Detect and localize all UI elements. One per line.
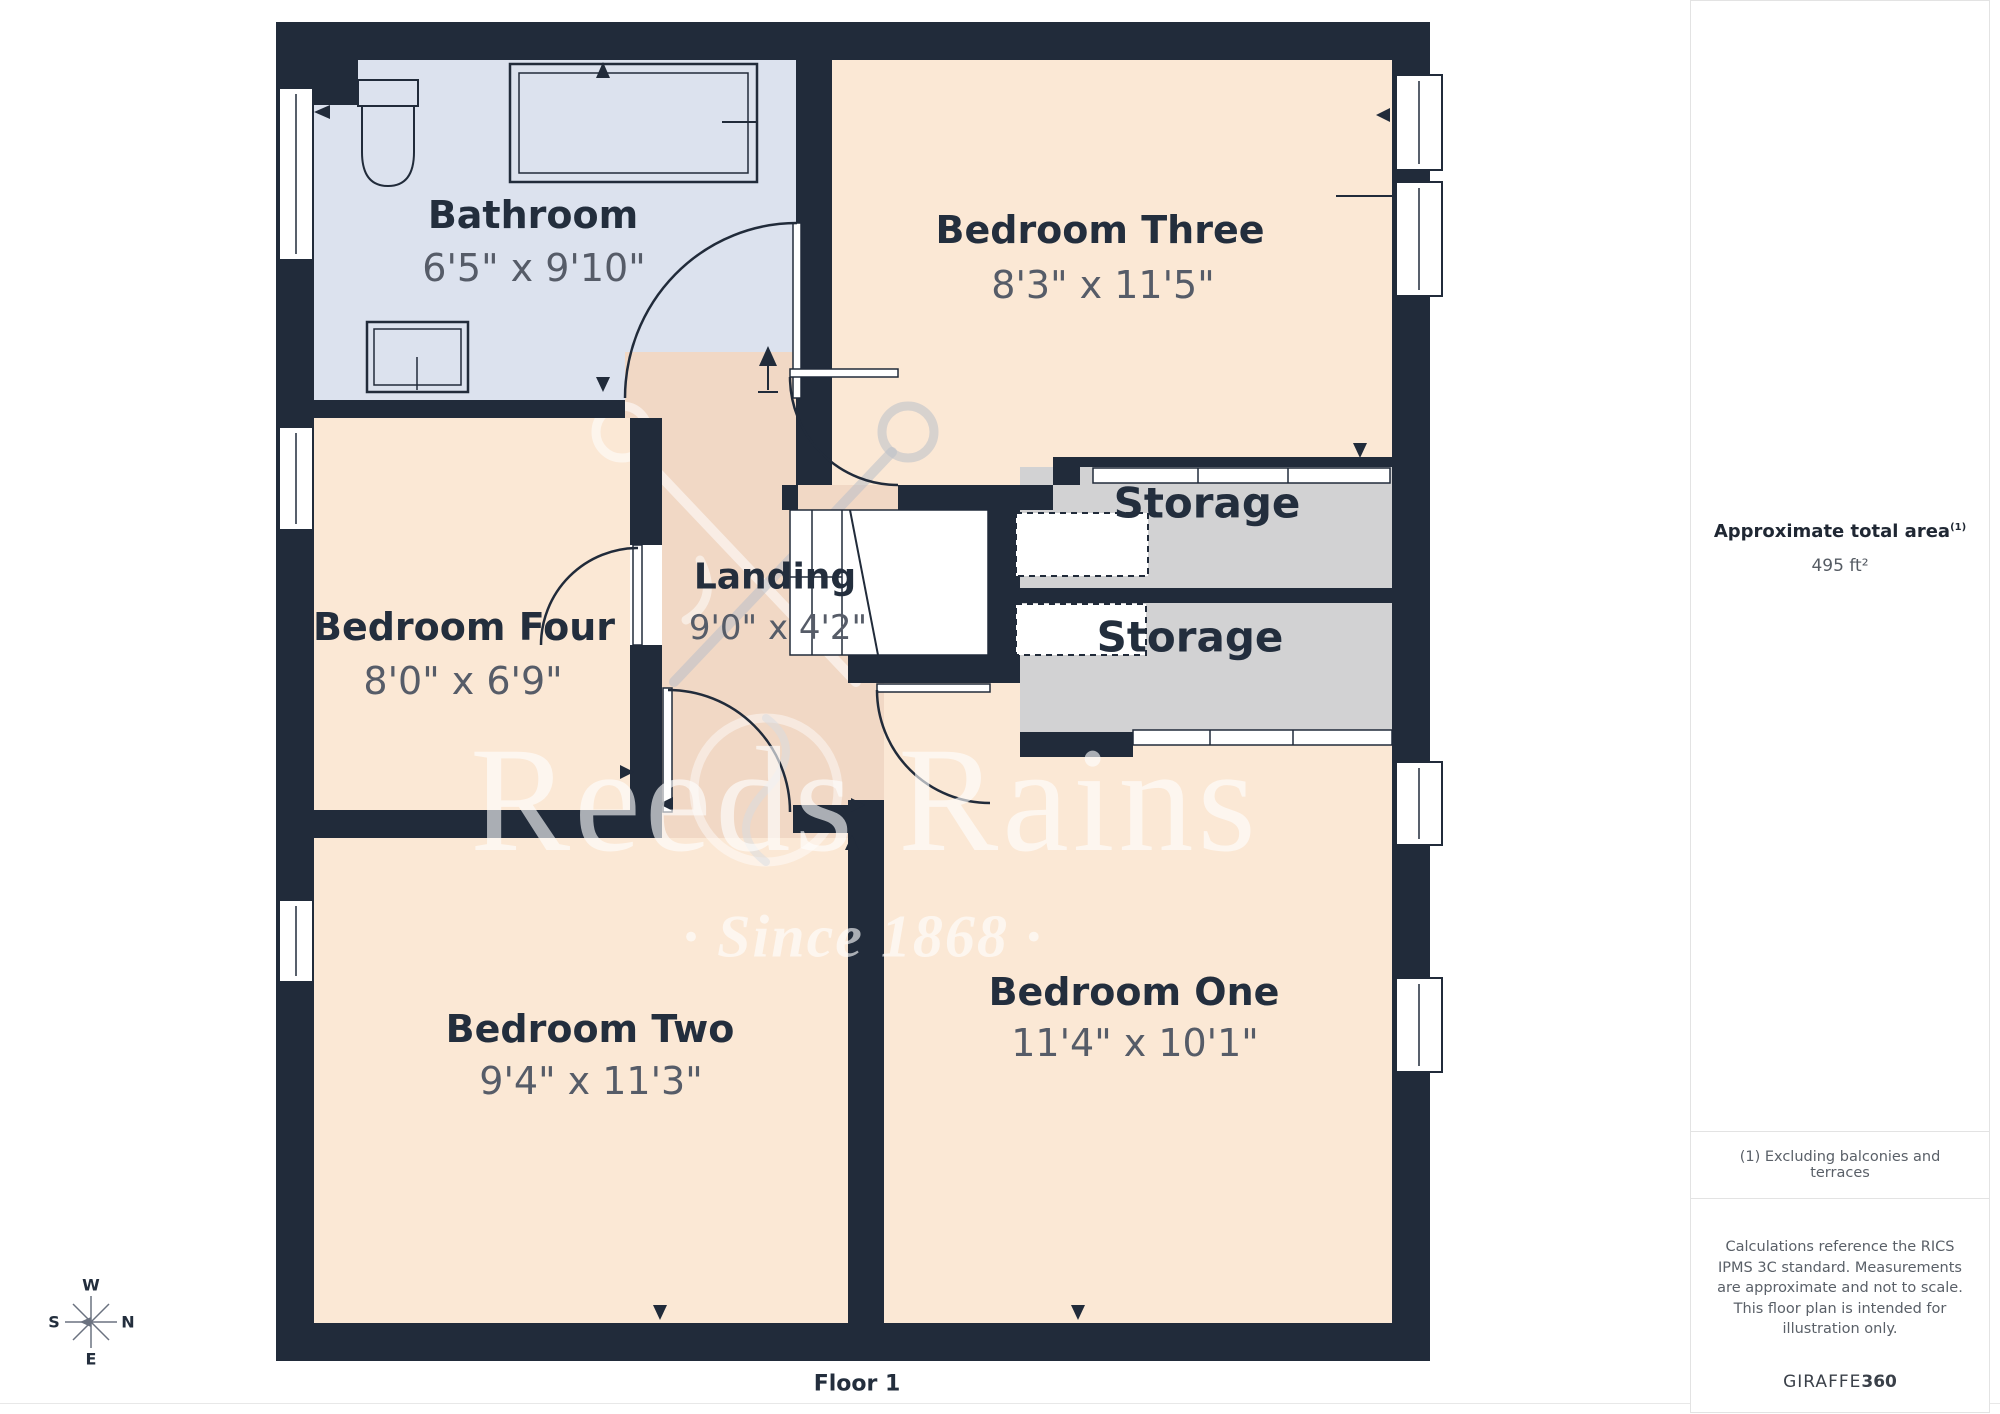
compass-south: S xyxy=(48,1313,60,1332)
watermark-tagline: · Since 1868 · xyxy=(683,903,1043,972)
giraffe360-logo: GIRAFFE360 xyxy=(1691,1372,1989,1392)
compass-north: N xyxy=(121,1313,134,1332)
watermark-brand: Reeds Rains xyxy=(470,714,1260,886)
storage-two-label: Storage xyxy=(1097,613,1284,662)
compass-east: E xyxy=(86,1350,97,1369)
info-sidebar: Approximate total area(1) 495 ft² (1) Ex… xyxy=(1690,0,1990,1413)
footnote-box: (1) Excluding balconies and terraces xyxy=(1691,1131,1989,1199)
bedroom-three-label: Bedroom Three xyxy=(936,208,1265,252)
bedroom-one-dims: 11'4" x 10'1" xyxy=(1011,1021,1259,1065)
bedroom-three-floor xyxy=(832,60,1392,457)
window xyxy=(1396,762,1442,845)
window xyxy=(1396,978,1442,1072)
compass-west: W xyxy=(82,1276,100,1295)
total-area-title-text: Approximate total area xyxy=(1714,521,1950,542)
window xyxy=(1396,182,1442,296)
window xyxy=(1396,75,1442,170)
bedroom-two-dims: 9'4" x 11'3" xyxy=(479,1059,702,1103)
disclaimer-box: Calculations reference the RICS IPMS 3C … xyxy=(1691,1199,1989,1392)
bathroom-dims: 6'5" x 9'10" xyxy=(422,246,645,290)
window xyxy=(279,427,313,530)
landing-label: Landing xyxy=(694,557,856,598)
bedroom-two-label: Bedroom Two xyxy=(446,1007,735,1051)
bedroom-four-label: Bedroom Four xyxy=(313,605,615,649)
total-area-footnote-marker: (1) xyxy=(1950,522,1966,533)
bathroom-label: Bathroom xyxy=(428,193,638,237)
giraffe360-logo-regular: GIRAFFE xyxy=(1783,1372,1861,1392)
outer-wall-top xyxy=(276,22,1430,60)
bedroom-four-dims: 8'0" x 6'9" xyxy=(363,659,562,703)
giraffe360-logo-bold: 360 xyxy=(1861,1372,1897,1392)
bedroom-one-label: Bedroom One xyxy=(989,970,1280,1014)
outer-wall-bottom xyxy=(276,1323,1430,1361)
total-area-block: Approximate total area(1) 495 ft² xyxy=(1691,521,1989,576)
landing-dims: 9'0" x 4'2" xyxy=(689,608,867,648)
window xyxy=(279,88,313,260)
compass-icon xyxy=(65,1296,117,1348)
footnote-text: (1) Excluding balconies and terraces xyxy=(1691,1149,1989,1181)
storage-one-label: Storage xyxy=(1114,479,1301,528)
bedroom-three-dims: 8'3" x 11'5" xyxy=(991,263,1214,307)
floor-label: Floor 1 xyxy=(814,1372,901,1397)
total-area-title: Approximate total area(1) xyxy=(1691,521,1989,542)
window xyxy=(279,900,313,982)
floorplan-page: { "floor_label": "Floor 1", "watermark":… xyxy=(0,0,2000,1414)
disclaimer-text: Calculations reference the RICS IPMS 3C … xyxy=(1714,1237,1966,1340)
total-area-value: 495 ft² xyxy=(1691,556,1989,576)
